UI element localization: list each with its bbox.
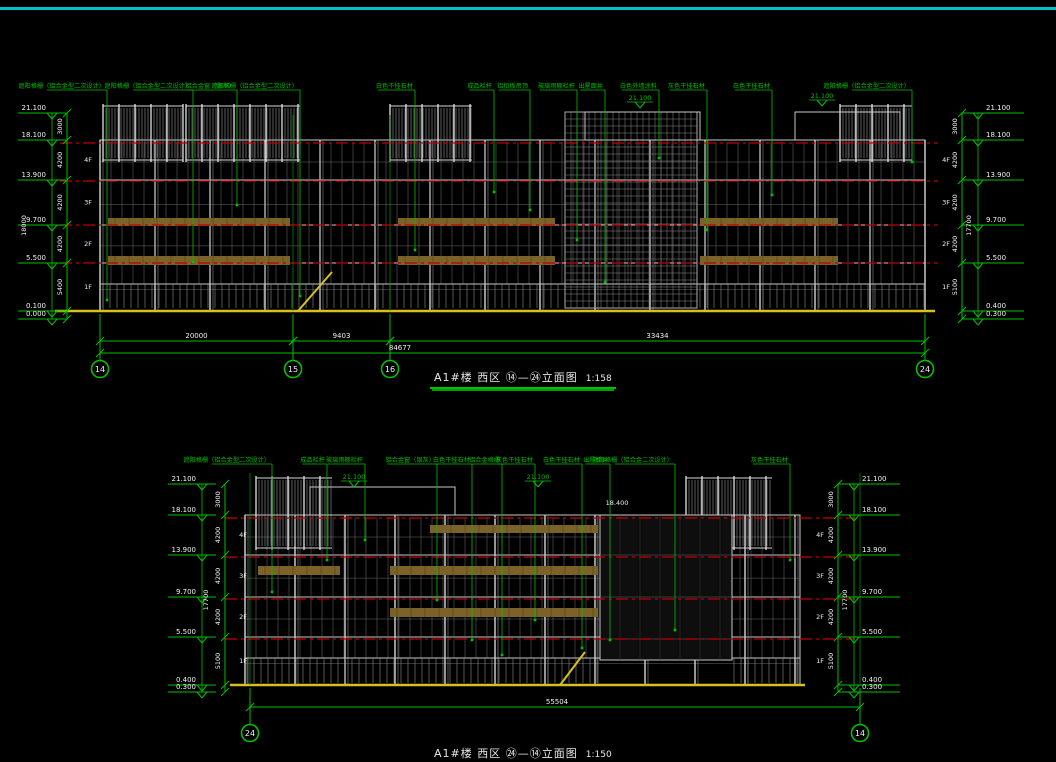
floor-label: 2F [239,613,247,621]
elevation-value: 0.300 [176,683,196,691]
annotation-leader-end [529,209,532,212]
dim-segment-value: 4200 [827,568,835,585]
elevation-value: 9.700 [176,588,196,596]
inner-elevation-value: 21.100 [629,94,652,102]
grid-bubble-label: 14 [855,729,865,738]
floor-label: 1F [942,283,950,291]
annotation-label: 遮阳格栅（铝合金型二次设计） [18,82,105,90]
grid-bubble-label: 16 [385,365,395,374]
elevation-flag-triangle [52,311,57,317]
elevation-flag-triangle [197,484,202,490]
annotation-leader-end [789,559,792,562]
elevation-flag-triangle [854,692,859,698]
floor-label: 3F [239,572,247,580]
inner-elevation-triangle [817,100,822,106]
dim-segment-value: 3000 [827,491,835,508]
elevation-value: 13.900 [22,171,47,179]
elevation-value: 5.500 [862,628,882,636]
floor-label: 4F [239,531,247,539]
elevation-value: 5.500 [986,254,1006,262]
elevation-value: 0.300 [986,310,1006,318]
elevation-flag-triangle [197,637,202,643]
elevation-value: 5.500 [26,254,46,262]
overall-height-value: 17700 [202,590,210,611]
elevation-flag-triangle [202,555,207,561]
elevation-flag-triangle [849,555,854,561]
grid-bubble-label: 15 [288,365,298,374]
annotation-leader-end [609,639,612,642]
dim-segment-value: 4200 [214,568,222,585]
annotation-label: 白色外墙涂料 [620,82,657,90]
annotation-leader-end [106,299,109,302]
elevation-value: 21.100 [862,475,887,483]
floor-label: 1F [84,283,92,291]
annotation-leader-end [364,539,367,542]
elevation-title-lower-text: A1#楼 西区 ㉔—⑭立面图 [434,747,578,760]
dim-segment-value: 4200 [951,236,959,253]
dim-segment-value: 4200 [56,152,64,169]
floor-label: 2F [816,613,824,621]
dim-total-value: 55504 [546,698,569,706]
annotation-label: 玻璃雨棚栏杆 [538,82,575,90]
spandrel-band [398,256,555,265]
inner-elevation-value: 21.100 [527,473,550,481]
annotation-leader-end [604,281,607,284]
elevation-flag-triangle [849,484,854,490]
elevation-west-elevation-lower: 遮阳格栅（铝合金型二次设计）成品栏杆玻璃雨棚栏杆铝合金窗（银灰）白色干挂石材铝合… [168,456,900,742]
dim-segment-value: 5100 [214,653,222,670]
inner-elevation-triangle [635,102,640,108]
dim-segment-value: 4200 [214,609,222,626]
annotation-leader-end [471,639,474,642]
dim-value: 20000 [185,332,207,340]
elevation-value: 18.100 [22,131,47,139]
annotation-label: 白色干挂石材 [733,82,770,90]
elevation-value: 21.100 [172,475,197,483]
grid-bubble-label: 24 [245,729,255,738]
elevation-flag-triangle [854,637,859,643]
overall-height-value: 17700 [841,590,849,611]
elevation-flag-triangle [47,113,52,119]
elevation-flag-triangle [973,319,978,325]
elevation-title-upper: A1#楼 西区 ⑭—㉔立面图1:158 [430,369,616,389]
annotation-leader-end [534,619,537,622]
dim-total-value: 84677 [389,344,411,352]
annotation-leader-end [414,249,417,252]
floor-label: 4F [84,156,92,164]
elevation-flag-triangle [973,180,978,186]
annotation-label: 遮阳格栅（铝合金型二次设计） [211,82,298,90]
elevation-value: 0.300 [862,683,882,691]
dim-segment-value: 4200 [56,236,64,253]
elevation-flag-triangle [854,597,859,603]
annotation-leader-end [658,157,661,160]
elevation-flag-triangle [849,637,854,643]
dim-segment-value: 3000 [56,118,64,135]
elevation-value: 0.100 [26,302,46,310]
elevation-title-lower-scale: 1:150 [586,750,612,760]
annotation-leader-end [501,654,504,657]
elevation-flag-triangle [978,311,983,317]
annotation-leader-end [493,191,496,194]
elevation-flag-triangle [854,685,859,691]
grid-bubble-label: 14 [95,365,105,374]
elevation-flag-triangle [197,685,202,691]
dim-segment-value: 4200 [827,527,835,544]
elevation-value: 18.100 [862,506,887,514]
spandrel-band [258,566,340,575]
elevation-value: 9.700 [862,588,882,596]
elevation-flag-triangle [202,484,207,490]
floor-label: 1F [239,657,247,665]
annotation-leader-end [911,161,914,164]
elevation-title-lower: A1#楼 西区 ㉔—⑭立面图1:150 [430,745,616,762]
dim-segment-value: 4200 [214,527,222,544]
elevation-flag-triangle [197,692,202,698]
annotation-leader-end [192,261,195,264]
floor-label: 3F [942,199,950,207]
elevation-flag-triangle [202,637,207,643]
elevation-flag-triangle [52,140,57,146]
spandrel-band [390,608,598,617]
elevation-flag-triangle [52,180,57,186]
annotation-label: 灰色干挂石材 [668,82,705,90]
floor-label: 4F [942,156,950,164]
annotation-leader-end [674,629,677,632]
annotation-label: 遮阳格栅（铝合金型二次设计） [823,82,910,90]
annotation-leader-end [581,647,584,650]
floor-label: 3F [816,572,824,580]
overall-height-value: 17700 [965,215,973,236]
dim-value: 9403 [333,332,351,340]
spandrel-band [390,566,598,575]
elevation-flag-triangle [978,263,983,269]
elevation-flag-triangle [973,140,978,146]
elevation-flag-triangle [47,319,52,325]
elevation-value: 21.100 [986,104,1011,112]
elevation-flag-triangle [47,225,52,231]
floor-label: 4F [816,531,824,539]
inner-elevation-value: 21.100 [811,92,834,100]
elevation-value: 9.700 [26,216,46,224]
annotation-leader-end [326,559,329,562]
inner-elevation-value: 18.400 [606,499,629,507]
dim-segment-value: 3000 [214,491,222,508]
elevation-flag-triangle [197,515,202,521]
elevation-value: 18.100 [986,131,1011,139]
elevation-value: 9.700 [986,216,1006,224]
elevation-flag-triangle [978,225,983,231]
cad-application-window: 遮阳格栅（铝合金型二次设计）遮阳格栅（铝合金型二次设计）铝合金窗（银灰）遮阳格栅… [0,0,1056,762]
elevation-flag-triangle [849,685,854,691]
dim-segment-value: 4200 [56,194,64,211]
annotation-leader-end [706,229,709,232]
elevation-value: 0.000 [26,310,46,318]
annotation-leader-end [771,194,774,197]
dim-segment-value: 5100 [951,279,959,296]
elevation-flag-triangle [197,555,202,561]
elevation-flag-triangle [973,225,978,231]
inner-elevation-value: 21.100 [343,473,366,481]
annotation-label: 遮阳格栅（铝合金型二次设计） [104,82,191,90]
annotation-label: 成品栏杆 [300,456,325,464]
elevation-flag-triangle [52,113,57,119]
elevation-flag-triangle [973,263,978,269]
annotation-label: 白色干挂石材 [543,456,580,464]
dim-segment-value: 5400 [56,279,64,296]
elevation-flag-triangle [978,180,983,186]
inner-elevation-triangle [822,100,827,106]
elevation-flag-triangle [854,484,859,490]
elevation-flag-triangle [854,555,859,561]
elevation-flag-triangle [47,263,52,269]
elevation-flag-triangle [52,319,57,325]
elevation-flag-triangle [202,515,207,521]
elevation-flag-triangle [52,225,57,231]
floor-label: 2F [84,240,92,248]
annotation-label: 铝合金窗（银灰） [386,456,436,464]
elevation-flag-triangle [849,692,854,698]
dim-segment-value: 5100 [827,653,835,670]
annotation-leader-end [299,295,302,298]
annotation-label: 玻璃雨棚栏杆 [326,456,363,464]
parapet-box [310,487,455,515]
elevation-title-upper-scale: 1:158 [586,374,612,384]
annotation-label: 遮阳格栅（铝合金二次设计） [593,456,673,464]
elevation-value: 13.900 [862,546,887,554]
dim-segment-value: 4200 [951,152,959,169]
elevation-flag-triangle [202,685,207,691]
annotation-leader-end [436,599,439,602]
grid-bubble-label: 24 [920,365,930,374]
elevation-flag-triangle [973,113,978,119]
annotation-label: 白色干挂石材 [433,456,470,464]
overall-height-value: 18000 [20,215,28,236]
inner-elevation-triangle [533,481,538,487]
annotation-leader-end [236,204,239,207]
annotation-label: 灰色干挂石材 [751,456,788,464]
inner-elevation-triangle [538,481,543,487]
floor-label: 2F [942,240,950,248]
dim-segment-value: 4200 [951,194,959,211]
elevation-value: 5.500 [176,628,196,636]
dim-segment-value: 3000 [951,118,959,135]
elevation-value: 13.900 [172,546,197,554]
elevation-flag-triangle [47,140,52,146]
elevation-value: 18.100 [172,506,197,514]
annotation-label: 灰色干挂石材 [496,456,533,464]
annotation-label: 成品栏杆 [467,82,492,90]
elevation-flag-triangle [47,180,52,186]
annotation-label: 白色干挂石材 [376,82,413,90]
inner-elevation-triangle [354,481,359,487]
annotation-label: 遮阳格栅（铝合金型二次设计） [183,456,270,464]
inner-elevation-triangle [640,102,645,108]
floor-label: 3F [84,199,92,207]
elevation-flag-triangle [52,263,57,269]
annotation-label: 出屋面井 [578,82,603,90]
elevation-flag-triangle [47,311,52,317]
elevation-value: 13.900 [986,171,1011,179]
inner-elevation-triangle [349,481,354,487]
elevation-flag-triangle [978,319,983,325]
elevation-flag-triangle [978,113,983,119]
elevation-title-upper-text: A1#楼 西区 ⑭—㉔立面图 [434,371,578,384]
elevation-west-elevation-upper: 遮阳格栅（铝合金型二次设计）遮阳格栅（铝合金型二次设计）铝合金窗（银灰）遮阳格栅… [18,82,1024,378]
elevation-flag-triangle [978,140,983,146]
elevation-flag-triangle [202,692,207,698]
parapet-box [795,112,900,140]
elevation-flag-triangle [849,597,854,603]
spandrel-band [430,525,598,533]
annotation-leader-end [271,591,274,594]
annotation-leader-end [576,239,579,242]
elevation-flag-triangle [973,311,978,317]
elevation-value: 0.400 [986,302,1006,310]
dim-value: 33434 [646,332,669,340]
annotation-label: 铝扣板吊顶 [497,82,528,90]
elevation-value: 21.100 [22,104,47,112]
dim-segment-value: 4200 [827,609,835,626]
floor-label: 1F [816,657,824,665]
